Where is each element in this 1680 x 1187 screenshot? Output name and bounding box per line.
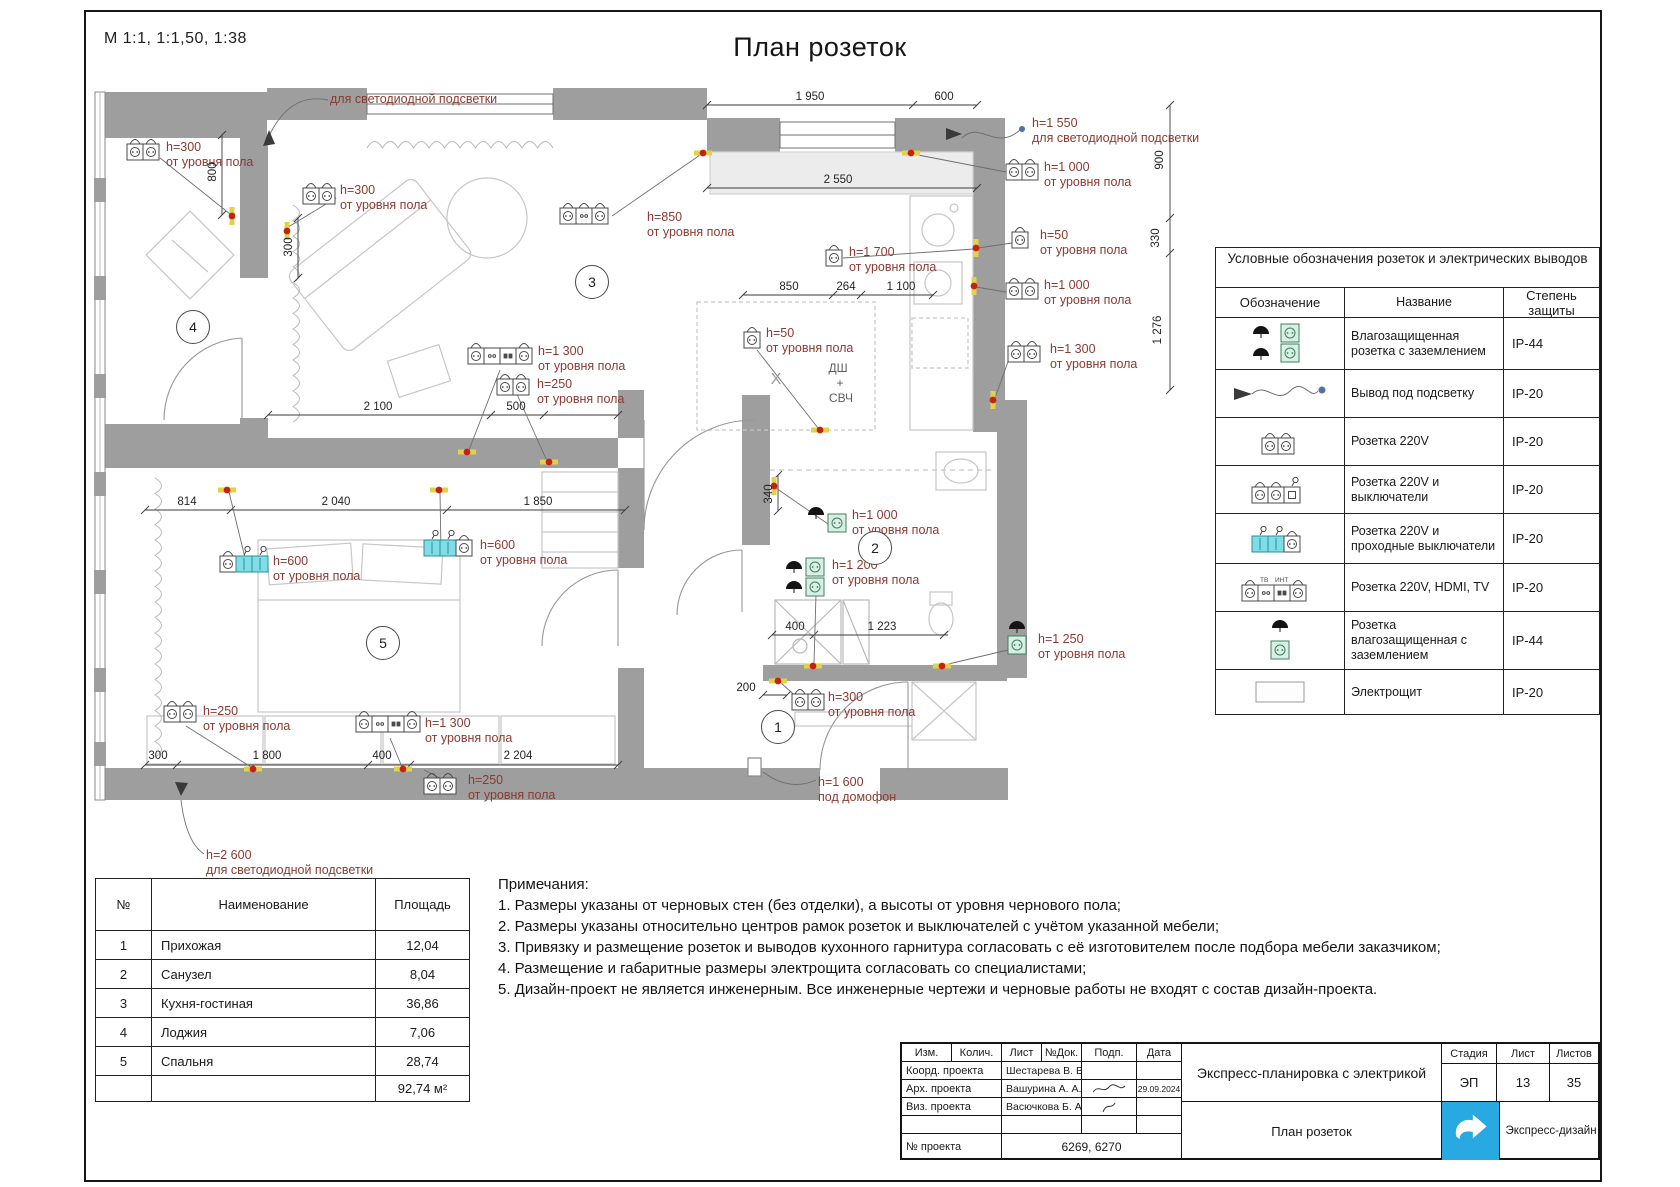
dimension-label: 400: [785, 621, 804, 633]
dimension-label: 340: [763, 484, 775, 503]
signature: [1082, 1080, 1137, 1098]
legend-col-symbol: Обозначение: [1216, 288, 1344, 317]
brand-name: Экспресс-дизайн: [1500, 1102, 1602, 1160]
notes: Примечания: 1. Размеры указаны от чернов…: [498, 874, 1583, 1000]
legend-col-name: Название: [1344, 288, 1504, 317]
legend-row: Розетка влагозащищенная с заземлением IP…: [1216, 612, 1599, 670]
legend-row: Электрощит IP-20: [1216, 670, 1599, 714]
kitchen-label-dishwasher: ДШ: [828, 361, 847, 375]
socket-annotation: h=1 300от уровня пола: [1050, 342, 1137, 372]
table-row: 3Кухня-гостиная36,86: [96, 989, 469, 1018]
svg-text:ТВ: ТВ: [1260, 577, 1268, 584]
electric-panel-icon: [1216, 670, 1344, 714]
socket-annotation: h=1 550для светодиодной подсветки: [1032, 116, 1199, 146]
socket-annotation: h=300от уровня пола: [340, 183, 427, 213]
dimension-label: 200: [736, 682, 755, 694]
dimension-label: 400: [372, 750, 391, 762]
rooms-table-total: 92,74 м²: [96, 1076, 469, 1101]
table-row: 5Спальня28,74: [96, 1047, 469, 1076]
socket-annotation: h=1 700от уровня пола: [849, 245, 936, 275]
arrow-logo-icon: [1449, 1109, 1493, 1153]
socket-annotation: для светодиодной подсветки: [330, 92, 497, 107]
dimension-label: 330: [1150, 228, 1162, 247]
socket-annotation: h=2 600для светодиодной подсветки: [206, 848, 373, 878]
dimension-label: 800: [207, 162, 219, 181]
socket-annotation: h=250от уровня пола: [203, 704, 290, 734]
dimension-label: 600: [934, 91, 953, 103]
socket-switch-icon: [1216, 466, 1344, 513]
socket-220v-icon: [1216, 418, 1344, 465]
socket-hdmi-tv-icon: ТВИНТ: [1216, 564, 1344, 611]
legend-row: ТВИНТ Розетка 220V, HDMI, TV IP-20: [1216, 564, 1599, 612]
socket-annotation: h=250от уровня пола: [537, 377, 624, 407]
dimension-label: 2 100: [364, 401, 393, 413]
legend-row: Вывод под подсветку IP-20: [1216, 370, 1599, 418]
room-number: 1: [761, 710, 795, 744]
dimension-label: 1 800: [253, 750, 282, 762]
kitchen-label-plus: +: [836, 376, 843, 390]
dimension-label: 1 850: [524, 496, 553, 508]
socket-annotation: h=50от уровня пола: [766, 326, 853, 356]
table-row: 4Лоджия7,06: [96, 1018, 469, 1047]
room-number: 5: [366, 626, 400, 660]
notes-title: Примечания:: [498, 874, 1583, 895]
rooms-table-header: № Наименование Площадь: [96, 879, 469, 931]
sheet-title: План розеток: [1182, 1102, 1442, 1160]
dimension-label: 1 223: [868, 621, 897, 633]
socket-annotation: h=850от уровня пола: [647, 210, 734, 240]
led-output-icon: [1216, 370, 1344, 417]
wet-socket-double-icon: [1216, 318, 1344, 369]
note-item: 2. Размеры указаны относительно центров …: [498, 916, 1583, 937]
room-number: 4: [176, 310, 210, 344]
table-row: 2Санузел8,04: [96, 960, 469, 989]
table-row: 1Прихожая12,04: [96, 931, 469, 960]
dimension-label: 2 550: [824, 174, 853, 186]
socket-annotation: h=1 300от уровня пола: [425, 716, 512, 746]
legend-row: Розетка 220V IP-20: [1216, 418, 1599, 466]
dimension-label: 500: [506, 401, 525, 413]
dimension-label: 1 100: [887, 281, 916, 293]
room-number: 2: [858, 531, 892, 565]
note-item: 1. Размеры указаны от черновых стен (без…: [498, 895, 1583, 916]
legend-row: Розетка 220V и проходные выключатели IP-…: [1216, 514, 1599, 564]
legend-header: Обозначение Название Степень защиты: [1216, 288, 1599, 318]
socket-annotation: h=50от уровня пола: [1040, 228, 1127, 258]
legend-col-ip: Степень защиты: [1504, 288, 1599, 317]
dimension-label: 2 204: [504, 750, 533, 762]
dimension-label: 1 950: [796, 91, 825, 103]
dimension-label: 850: [779, 281, 798, 293]
room-number: 3: [575, 265, 609, 299]
socket-annotation: h=600от уровня пола: [480, 538, 567, 568]
socket-annotation: h=300от уровня пола: [828, 690, 915, 720]
dimension-label: 300: [283, 237, 295, 256]
note-item: 3. Привязку и размещение розеток и вывод…: [498, 937, 1583, 958]
brand-logo: [1442, 1102, 1500, 1160]
dimension-label: 264: [836, 281, 855, 293]
kitchen-label-cross: X: [771, 371, 782, 389]
wet-socket-icon: [1216, 612, 1344, 669]
legend-table: Условные обозначения розеток и электриче…: [1215, 247, 1600, 715]
svg-text:ИНТ: ИНТ: [1275, 577, 1288, 584]
signature: [1082, 1098, 1137, 1116]
title-block: Изм. Колич. Лист №Док. Подп. Дата Коорд.…: [900, 1042, 1600, 1160]
kitchen-label-microwave: СВЧ: [829, 391, 853, 405]
dimension-label: 814: [177, 496, 196, 508]
socket-annotation: h=1 250от уровня пола: [1038, 632, 1125, 662]
socket-pass-switch-icon: [1216, 514, 1344, 563]
dimension-label: 2 040: [322, 496, 351, 508]
socket-annotation: h=1 600под домофон: [818, 775, 896, 805]
doc-title: Экспресс-планировка с электрикой: [1182, 1044, 1442, 1102]
drawing-sheet: М 1:1, 1:1,50, 1:38 План розеток: [0, 0, 1680, 1187]
socket-annotation: h=1 000от уровня пола: [1044, 278, 1131, 308]
dimension-label: 1 276: [1152, 316, 1164, 345]
socket-annotation: h=250от уровня пола: [468, 773, 555, 803]
socket-annotation: h=1 300от уровня пола: [538, 344, 625, 374]
socket-annotation: h=1 000от уровня пола: [1044, 160, 1131, 190]
rooms-table: № Наименование Площадь 1Прихожая12,04 2С…: [95, 878, 470, 1102]
legend-title: Условные обозначения розеток и электриче…: [1216, 248, 1599, 288]
note-item: 5. Дизайн-проект не является инженерным.…: [498, 979, 1583, 1000]
note-item: 4. Размещение и габаритные размеры элект…: [498, 958, 1583, 979]
dimension-label: 900: [1154, 150, 1166, 169]
legend-row: Влагозащищенная розетка с заземлением IP…: [1216, 318, 1599, 370]
dimension-label: 300: [148, 750, 167, 762]
legend-row: Розетка 220V и выключатели IP-20: [1216, 466, 1599, 514]
socket-annotation: h=600от уровня пола: [273, 554, 360, 584]
